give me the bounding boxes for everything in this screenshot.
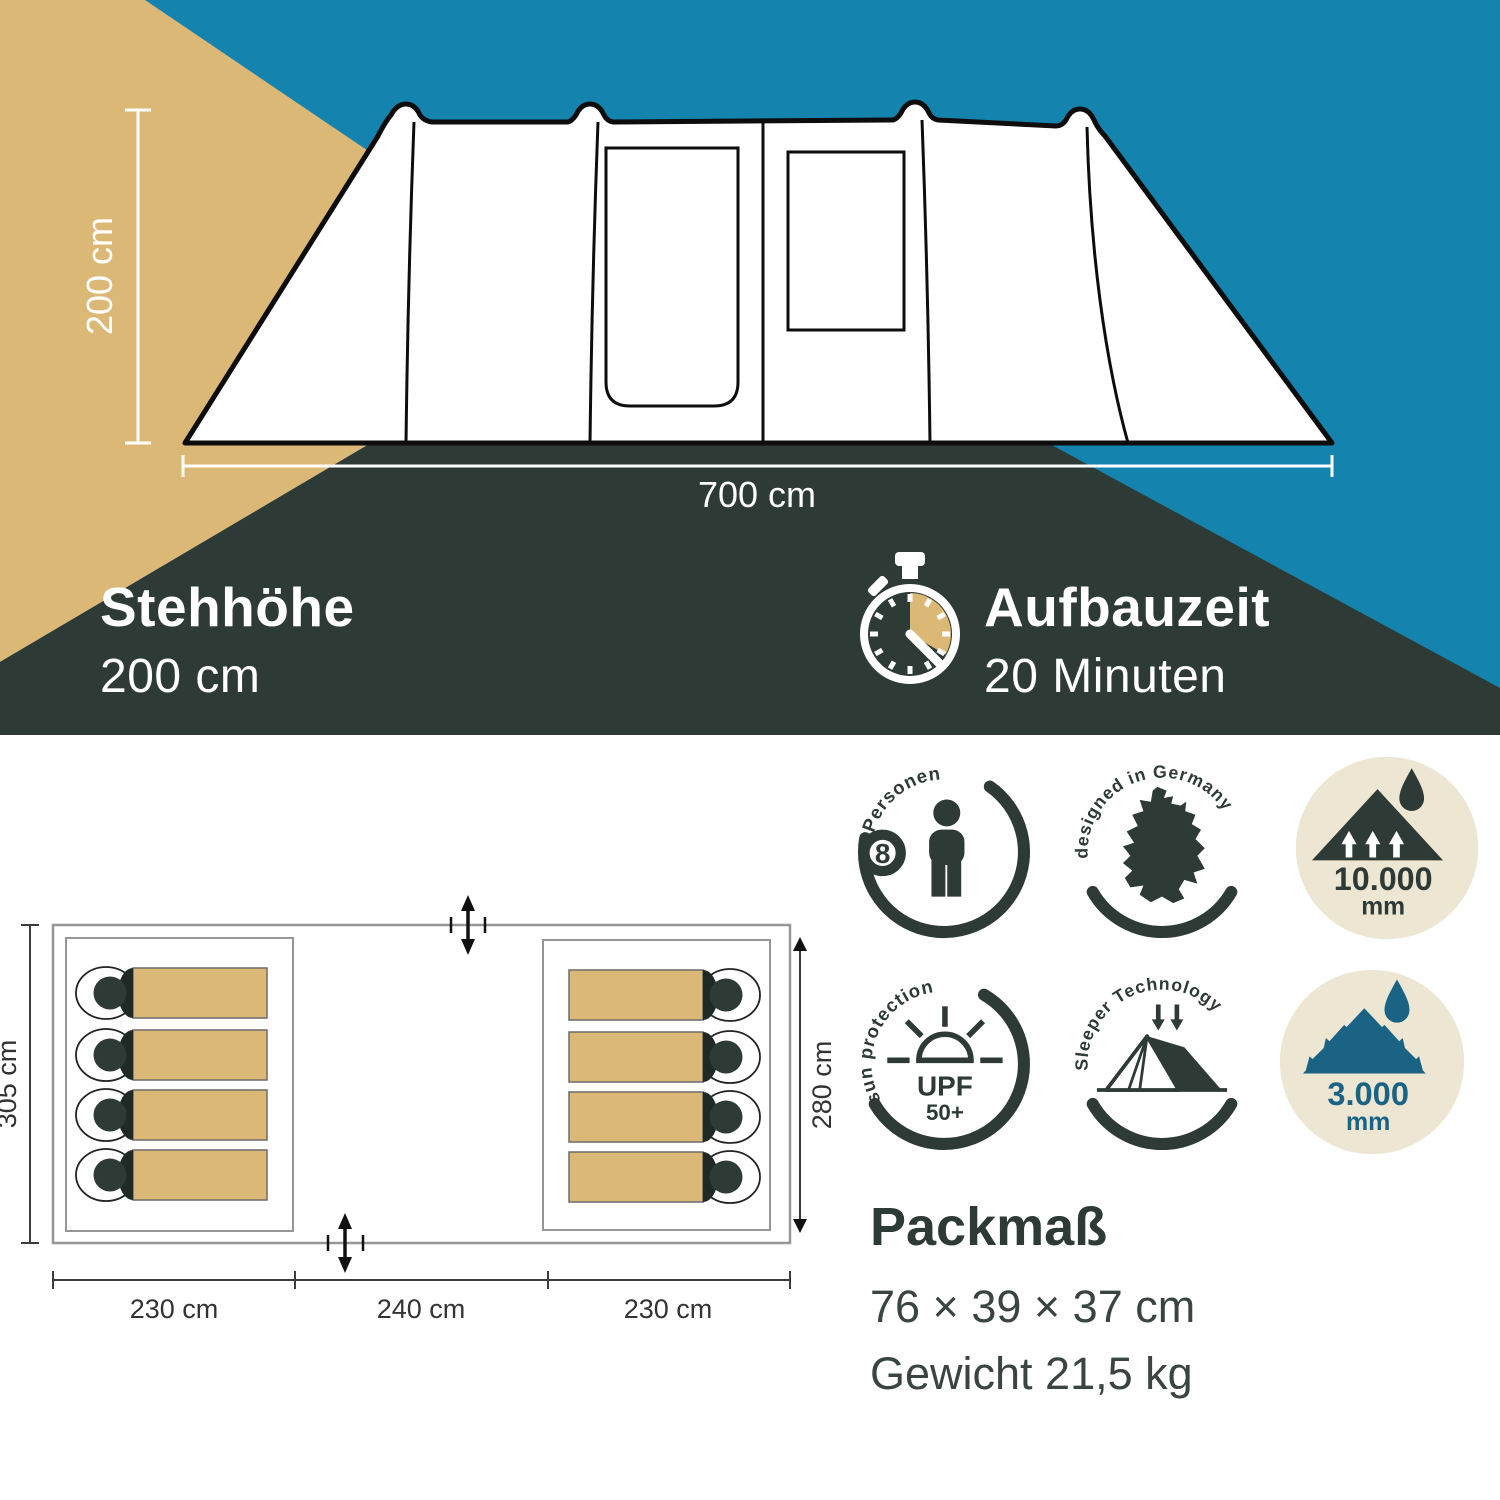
pack-size-block: Packmaß 76 × 39 × 37 cm Gewicht 21,5 kg [870,1196,1195,1402]
width-dimension-label: 700 cm [698,474,816,515]
height-dimension-label: 200 cm [79,217,120,335]
pack-size-title: Packmaß [870,1196,1195,1258]
sleeping-bag [569,969,760,1021]
water-fly-value: 10.000 [1334,861,1433,897]
sleeping-bag [569,1091,760,1143]
depth-right-label: 280 cm [807,1041,837,1130]
stopwatch-icon [853,548,969,696]
pack-size-dimensions: 76 × 39 × 37 cm [870,1280,1195,1335]
sleeping-bag [76,1029,267,1081]
water-floor-unit: mm [1346,1108,1390,1136]
depth-dimension-left [21,925,39,1243]
tent-infographic: 200 cm 700 cm Stehhöhe 200 cm [0,0,1500,1500]
germany-map-icon [1123,787,1205,903]
up-arrows-icon [1341,831,1404,858]
sleeping-bag [76,967,267,1019]
sleeper-tent-icon [1097,1004,1227,1090]
depth-dimension-right [793,937,807,1233]
sun-icon [887,1006,1002,1060]
water-column-fly-badge: 10.000 mm [1292,753,1482,943]
pack-weight: Gewicht 21,5 kg [870,1347,1195,1402]
sleeper-technology-badge: Sleeper Technology [1069,971,1255,1157]
sun-protection-badge: UPF 50+ sun protection [851,971,1037,1157]
sleeping-bag [76,1149,267,1201]
persons-badge: 8 Personen [851,759,1037,945]
depth-left-label: 305 cm [0,1040,22,1129]
sleeping-bag [569,1031,760,1083]
person-count: 8 [875,838,891,869]
tent-window [788,152,904,330]
person-icon [929,799,964,896]
width-segment-label: 240 cm [377,1294,466,1324]
water-fly-unit: mm [1361,894,1405,921]
svg-text:Personen: Personen [858,762,942,834]
width-dimension-bottom [53,1271,790,1289]
standing-height-block: Stehhöhe 200 cm [100,575,355,704]
sleeping-bag [76,1089,267,1141]
sleeping-bag [569,1151,760,1203]
setup-time-title: Aufbauzeit [984,575,1270,639]
standing-height-title: Stehhöhe [100,575,355,639]
width-segment-label: 230 cm [624,1294,713,1324]
upf-rating: 50+ [926,1100,964,1125]
persons-label: Personen [858,762,942,834]
upf-text: UPF [917,1071,973,1102]
tent-door [606,148,738,406]
water-column-floor-badge: 3.000 mm [1276,966,1468,1158]
water-floor-value: 3.000 [1327,1075,1409,1112]
designed-in-germany-badge: designed in Germany [1069,759,1255,945]
standing-height-value: 200 cm [100,649,355,704]
width-segment-label: 230 cm [130,1294,219,1324]
floor-plan: 305 cm 280 cm 230 cm 240 cm 230 cm [0,865,840,1325]
setup-time-value: 20 Minuten [984,649,1270,704]
setup-time-block: Aufbauzeit 20 Minuten [984,575,1270,704]
